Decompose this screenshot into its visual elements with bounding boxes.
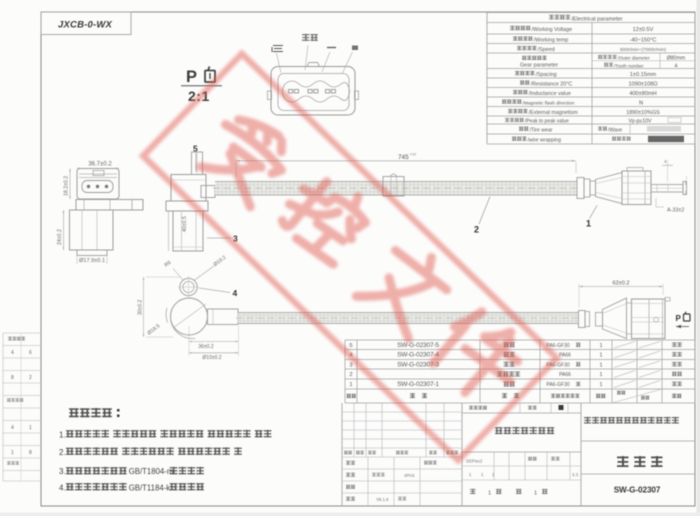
svg-text:/wire wrapping: /wire wrapping — [528, 138, 562, 144]
svg-text:-40~150°C: -40~150°C — [630, 38, 657, 44]
svg-text:745: 745 — [398, 154, 409, 161]
svg-text:500r/min~(7000r/min): 500r/min~(7000r/min) — [620, 47, 666, 53]
svg-text:12±0.5V: 12±0.5V — [633, 27, 654, 33]
svg-text:P: P — [676, 314, 682, 323]
svg-text:/Speed: /Speed — [538, 47, 555, 53]
svg-text:4: 4 — [675, 63, 678, 69]
svg-text:A-33±2: A-33±2 — [667, 208, 684, 214]
svg-text:1: 1 — [534, 491, 537, 497]
svg-text:/Tooth number: /Tooth number — [614, 63, 644, 68]
svg-text:1±0.15mm: 1±0.15mm — [630, 72, 657, 78]
svg-text:1: 1 — [600, 362, 603, 368]
svg-text:/Magnetic flash direction: /Magnetic flash direction — [523, 101, 575, 107]
svg-text:GB/T1804-m: GB/T1804-m — [129, 467, 174, 476]
svg-text:+10: +10 — [410, 153, 416, 157]
svg-text:3.: 3. — [59, 467, 66, 476]
svg-text:2: 2 — [29, 375, 32, 381]
svg-text:1: 1 — [600, 343, 603, 349]
svg-text:Vp-p≥10V: Vp-p≥10V — [628, 119, 652, 125]
svg-text:5: 5 — [349, 343, 352, 349]
svg-text:SDPa≤2: SDPa≤2 — [466, 459, 483, 464]
svg-text:1: 1 — [349, 382, 352, 388]
svg-text:4: 4 — [664, 159, 667, 164]
svg-text:P: P — [186, 68, 197, 86]
svg-text:18.2±0.2: 18.2±0.2 — [64, 176, 70, 196]
svg-text:6: 6 — [29, 350, 32, 356]
svg-text:30±0.2: 30±0.2 — [138, 300, 144, 315]
svg-text:1090±108Ω: 1090±108Ω — [628, 82, 657, 88]
svg-text:Ø17.9±0.1: Ø17.9±0.1 — [79, 258, 105, 264]
svg-text:PA6-GF30: PA6-GF30 — [546, 382, 569, 388]
svg-text:36.7±0.2: 36.7±0.2 — [88, 161, 112, 167]
svg-text:1:1: 1:1 — [572, 472, 579, 477]
svg-text:Ø10±0.2: Ø10±0.2 — [202, 355, 221, 361]
svg-text:1: 1 — [600, 382, 603, 388]
svg-text:400±80mH: 400±80mH — [629, 91, 656, 97]
svg-text:/Spacing: /Spacing — [536, 72, 557, 78]
svg-text:JXCB-0-WX: JXCB-0-WX — [58, 20, 113, 31]
svg-text:/Outer diameter: /Outer diameter — [618, 56, 650, 61]
svg-text:PA66: PA66 — [559, 372, 571, 378]
svg-text:4.: 4. — [59, 484, 66, 493]
svg-text:1: 1 — [11, 450, 14, 456]
svg-text:'06.1.8: '06.1.8 — [376, 497, 389, 502]
svg-text:Gear parameter: Gear parameter — [520, 63, 558, 69]
svg-text:8: 8 — [11, 375, 14, 381]
svg-text:2: 2 — [474, 225, 479, 235]
svg-text:4PA6: 4PA6 — [404, 473, 415, 478]
svg-text:4: 4 — [11, 425, 14, 431]
svg-text:/Tire wear: /Tire wear — [530, 128, 553, 134]
svg-text:/Resistance 20°C: /Resistance 20°C — [531, 82, 573, 88]
svg-text:1.: 1. — [59, 431, 66, 440]
svg-text:4: 4 — [11, 350, 14, 356]
svg-text:/External magnetism: /External magnetism — [529, 110, 579, 116]
svg-text:SW-G-02307: SW-G-02307 — [614, 486, 661, 495]
svg-text:1: 1 — [586, 219, 591, 229]
svg-text:/Inductance value: /Inductance value — [529, 91, 571, 97]
svg-text:/Working temp: /Working temp — [534, 38, 569, 44]
svg-text:GB/T1184-k: GB/T1184-k — [129, 484, 171, 493]
svg-text:40±0.5: 40±0.5 — [182, 216, 188, 232]
svg-text:4: 4 — [233, 288, 238, 298]
svg-text:/Peak to peak value: /Peak to peak value — [525, 119, 569, 125]
svg-text:/Working Voltage: /Working Voltage — [532, 27, 573, 33]
svg-text:1: 1 — [488, 491, 491, 497]
svg-text:N: N — [639, 101, 643, 107]
svg-text:/Wave: /Wave — [608, 127, 622, 133]
svg-text:3: 3 — [349, 362, 352, 368]
svg-text:8: 8 — [29, 450, 32, 456]
svg-text:/Electrical parameter: /Electrical parameter — [571, 16, 622, 22]
svg-text:62±0.2: 62±0.2 — [612, 280, 629, 286]
svg-text:1: 1 — [600, 372, 603, 378]
svg-text:24±0.2: 24±0.2 — [57, 229, 63, 245]
svg-text:SW-G-02307-5: SW-G-02307-5 — [397, 342, 439, 349]
svg-text:2.: 2. — [59, 448, 66, 457]
svg-text:SW-G-02307-1: SW-G-02307-1 — [397, 381, 439, 388]
svg-text:1: 1 — [29, 425, 32, 431]
svg-text:1: 1 — [600, 353, 603, 359]
svg-text:1890±10%GS: 1890±10%GS — [626, 110, 660, 116]
svg-text:36±0.2: 36±0.2 — [198, 344, 213, 350]
svg-text:Ø80mm: Ø80mm — [667, 56, 685, 62]
svg-text:2: 2 — [349, 372, 352, 378]
